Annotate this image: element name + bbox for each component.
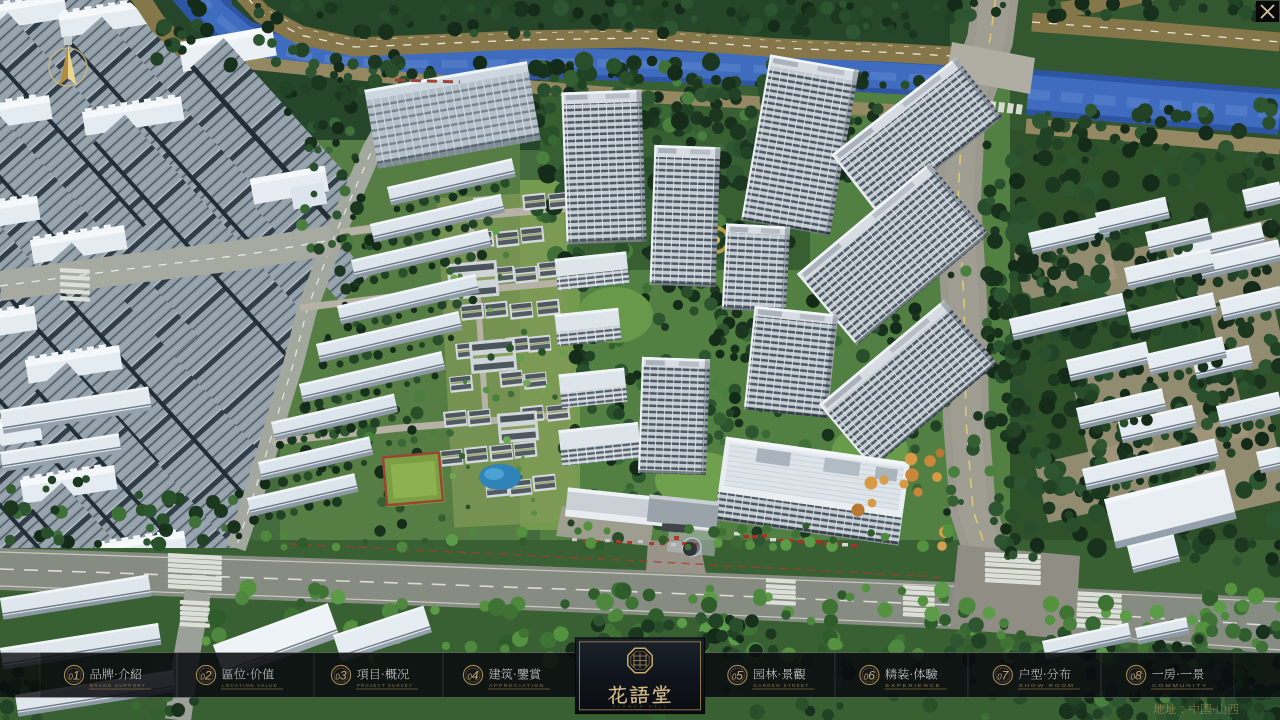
svg-text:PROJECT SURVEY: PROJECT SURVEY <box>357 683 413 688</box>
svg-text:APPRECIATION: APPRECIATION <box>489 683 545 688</box>
svg-text:BRAND SUPPORT: BRAND SUPPORT <box>90 683 146 688</box>
svg-text:COMMUNITY: COMMUNITY <box>1152 683 1208 688</box>
svg-text:EXPERIENCE: EXPERIENCE <box>885 683 941 688</box>
svg-text:SHOW ROOM: SHOW ROOM <box>1019 683 1075 688</box>
svg-text:F L O W E R · H A L L: F L O W E R · H A L L <box>613 705 667 709</box>
svg-text:LOCATION VALUE: LOCATION VALUE <box>222 683 278 688</box>
svg-text:GARDEN STREET: GARDEN STREET <box>753 683 809 688</box>
